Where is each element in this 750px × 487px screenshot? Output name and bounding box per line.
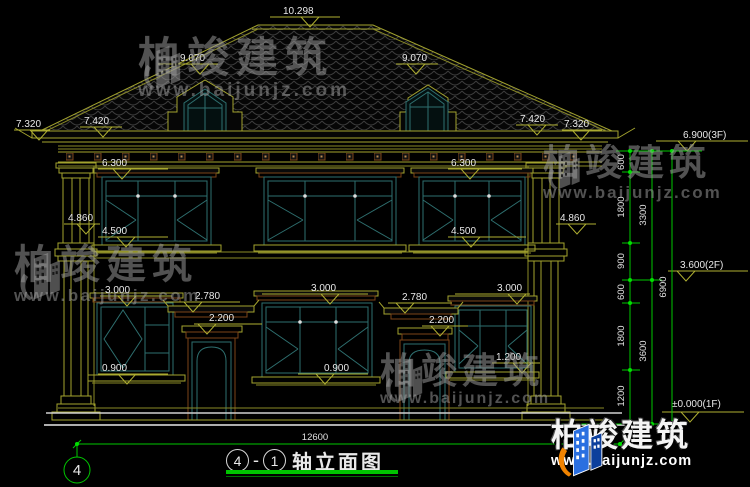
dim-segment: 1800 bbox=[616, 196, 627, 217]
column-right bbox=[522, 163, 570, 420]
dim-segment: 600 bbox=[616, 284, 627, 300]
dim-total: 6900 bbox=[658, 276, 669, 297]
level-label: 3.000 bbox=[497, 283, 522, 294]
level-label: 9.070 bbox=[402, 53, 427, 64]
level-label: 2.780 bbox=[402, 292, 427, 303]
title-underline bbox=[226, 470, 398, 474]
dimension-lines bbox=[73, 151, 702, 457]
dim-segment: 1800 bbox=[616, 325, 627, 346]
elevation-linework: 10.298 9.070 9.070 7.320 7.420 7.420 7.3… bbox=[0, 0, 750, 487]
floor-level-1f: ±0.000(1F) bbox=[672, 399, 721, 410]
level-label: 1.200 bbox=[496, 352, 521, 363]
level-label: 3.000 bbox=[311, 283, 336, 294]
window-2f-center bbox=[254, 168, 406, 253]
level-label: 2.780 bbox=[195, 291, 220, 302]
level-label: 0.900 bbox=[324, 363, 349, 374]
level-label: 4.500 bbox=[102, 226, 127, 237]
floor-level-2f: 3.600(2F) bbox=[680, 260, 723, 271]
window-1f-center bbox=[252, 291, 380, 385]
level-label: 7.420 bbox=[520, 114, 545, 125]
title-axis-left-bubble: 4 bbox=[226, 449, 249, 472]
level-label: 6.300 bbox=[102, 158, 127, 169]
level-label: 2.200 bbox=[429, 315, 454, 326]
level-label: 4.860 bbox=[560, 213, 585, 224]
window-2f-right bbox=[409, 168, 535, 253]
dim-segment: 1200 bbox=[616, 385, 627, 406]
cad-elevation-drawing: 10.298 9.070 9.070 7.320 7.420 7.420 7.3… bbox=[0, 0, 750, 487]
level-label: 0.900 bbox=[102, 363, 127, 374]
level-label: 7.320 bbox=[16, 119, 41, 130]
dim-subtotal: 3600 bbox=[638, 340, 649, 361]
window-2f-left bbox=[92, 168, 221, 253]
ground-lines bbox=[44, 408, 628, 425]
level-label: 7.320 bbox=[564, 119, 589, 130]
level-label: 9.070 bbox=[180, 53, 205, 64]
level-label: 3.000 bbox=[105, 285, 130, 296]
dim-subtotal: 3300 bbox=[638, 204, 649, 225]
title-separator: - bbox=[253, 450, 259, 471]
title-underline-thin bbox=[226, 476, 398, 477]
axis-bubble-label: 4 bbox=[73, 462, 81, 479]
level-label: 4.860 bbox=[68, 213, 93, 224]
level-label: 4.500 bbox=[451, 226, 476, 237]
dim-segment: 600 bbox=[616, 154, 627, 170]
window-1f-right bbox=[446, 296, 539, 380]
level-label: 7.420 bbox=[84, 116, 109, 127]
axis-bubble-4: 4 bbox=[64, 457, 90, 483]
dim-segment: 900 bbox=[616, 253, 627, 269]
level-label: 6.300 bbox=[451, 158, 476, 169]
level-label: 2.200 bbox=[209, 313, 234, 324]
title-axis-right-bubble: 1 bbox=[263, 449, 286, 472]
dim-width: 12600 bbox=[302, 432, 328, 443]
level-label: 10.298 bbox=[283, 6, 314, 17]
floor-level-3f: 6.900(3F) bbox=[683, 130, 726, 141]
